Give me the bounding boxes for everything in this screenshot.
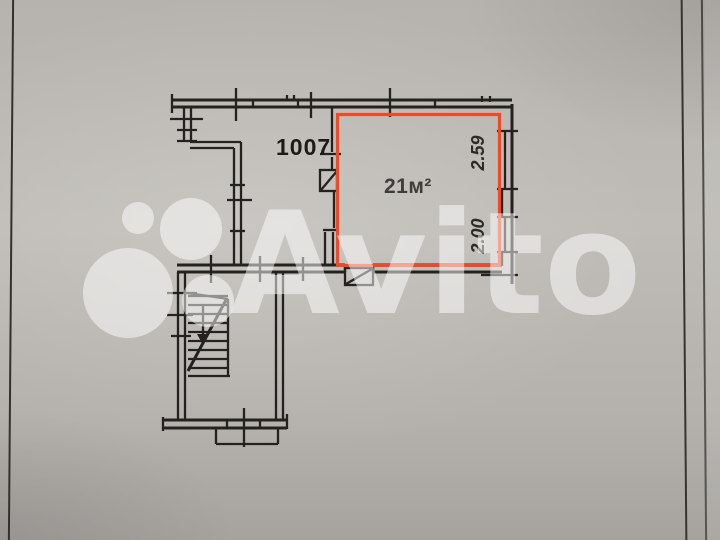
dimension-label-bottom: 2.00 <box>468 213 488 259</box>
entry-door <box>345 268 373 285</box>
corridor-l-wall <box>190 142 252 265</box>
middle-wall <box>177 255 502 283</box>
dimension-label-top: 2.59 <box>468 130 488 176</box>
bottom-landing-wall <box>163 408 287 447</box>
floor-plan-photo: 1007 21м² 2.59 2.00 Avito <box>0 0 720 540</box>
room-area-label: 21м² <box>384 175 432 199</box>
stairs-direction-arrow <box>197 304 209 345</box>
left-upper-wall <box>170 107 203 141</box>
staircase <box>167 272 283 420</box>
room-number-label: 1007 <box>276 134 331 161</box>
floor-plan-linework <box>0 0 720 540</box>
